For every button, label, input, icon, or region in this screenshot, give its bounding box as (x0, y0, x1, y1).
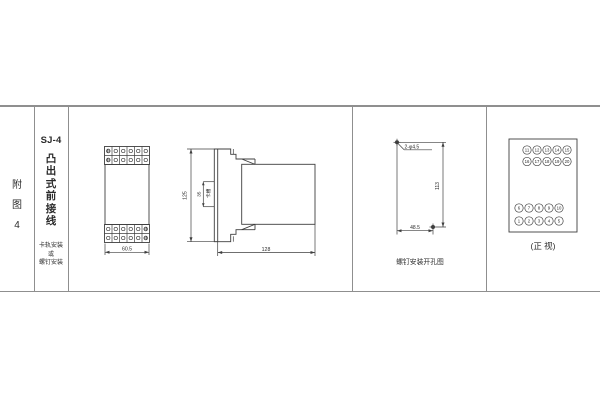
front-view-drawing: 60.5 (95, 135, 165, 265)
drill-diagram: 2-φ4.5 113 48.5 (380, 135, 460, 255)
terminal-number: 18 (545, 159, 550, 164)
side-height-dim-label: 125 (183, 191, 189, 200)
mounting-line: 或 (33, 251, 69, 260)
terminal-number: 10 (557, 206, 562, 211)
terminal-number: 16 (525, 159, 530, 164)
terminal-number: 8 (538, 206, 541, 211)
type-char: 式 (34, 178, 68, 190)
mounting-line: 卡轨安装 (33, 242, 69, 251)
side-slot-name-label: 卡槽 (205, 189, 212, 199)
terminal-number: 3 (538, 219, 541, 224)
terminal-number: 15 (565, 148, 570, 153)
terminal-number: 1 (518, 219, 521, 224)
drill-horizontal-dim-label: 48.5 (410, 225, 420, 231)
terminal-number: 7 (528, 206, 531, 211)
figure-char: 附 (0, 176, 34, 196)
terminal-number: 14 (555, 148, 560, 153)
side-view-drawing: 125 35 卡槽 128 (178, 135, 323, 265)
front-width-dim-label: 60.5 (122, 247, 132, 253)
type-char: 凸 (34, 153, 68, 165)
terminal-number: 17 (535, 159, 540, 164)
manual-page: 附 图 4 SJ-4 凸 出 式 前 接 线 卡轨安装 或 螺钉安装 (0, 0, 600, 400)
model-label: SJ-4 (34, 135, 68, 146)
type-char: 线 (34, 215, 68, 227)
band-top-border (0, 105, 600, 107)
mounting-note: 卡轨安装 或 螺钉安装 (33, 242, 69, 268)
figure-number-block: 附 图 4 (0, 176, 34, 236)
drill-diagram-caption: 螺钉安装开孔图 (378, 256, 462, 266)
terminal-layout-drawing: 11 12 13 14 15 16 17 18 19 20 6 7 8 9 10… (486, 135, 600, 240)
band-bottom-border (0, 291, 600, 293)
terminal-number: 13 (545, 148, 550, 153)
side-slot-dim-label: 35 (197, 191, 203, 197)
terminal-number: 20 (565, 159, 570, 164)
terminal-number: 11 (525, 148, 530, 153)
terminal-view-caption: (正 视) (499, 240, 587, 252)
terminal-number: 4 (548, 219, 551, 224)
type-char: 接 (34, 203, 68, 215)
terminal-number: 5 (558, 219, 561, 224)
type-char: 前 (34, 190, 68, 202)
mounting-line: 螺钉安装 (33, 259, 69, 268)
figure-char: 4 (0, 216, 34, 236)
terminal-number: 19 (555, 159, 560, 164)
divider-3 (352, 105, 353, 291)
figure-char: 图 (0, 196, 34, 216)
type-char: 出 (34, 165, 68, 177)
terminal-number: 9 (548, 206, 551, 211)
terminal-number: 12 (535, 148, 540, 153)
drill-vertical-dim-label: 113 (435, 182, 441, 190)
side-depth-dim-label: 128 (262, 247, 271, 253)
terminal-number: 6 (518, 206, 521, 211)
type-label-vertical: 凸 出 式 前 接 线 (34, 153, 68, 227)
terminal-number: 2 (528, 219, 531, 224)
